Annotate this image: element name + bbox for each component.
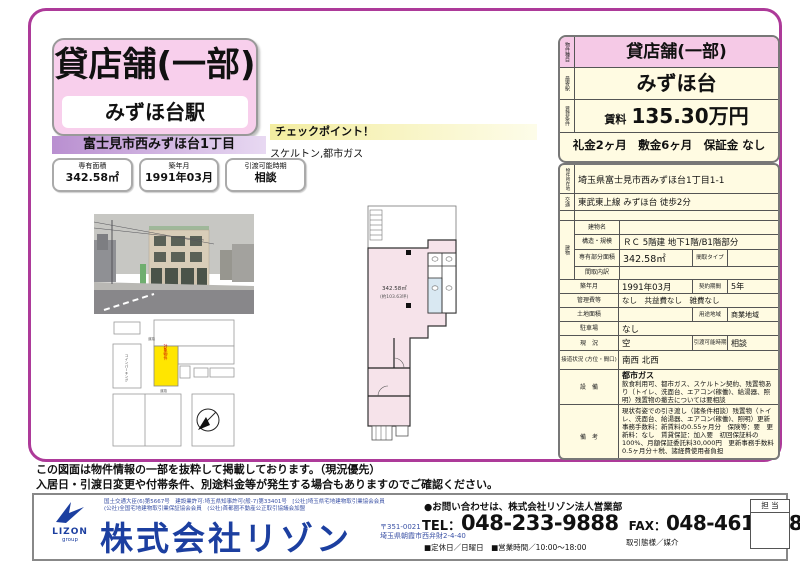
site-map: 対象物件 コインパーキング 道路 道路: [92, 318, 252, 450]
equipment-value: 都市ガス 飲食利用可、都市ガス、スケルトン契約、残置物あり（トイレ、洗面台、エア…: [619, 370, 778, 406]
land-value: [619, 308, 692, 321]
row-built: 築年月 1991年03月 契約期間 5年: [560, 280, 778, 294]
road-label-1: 道路: [148, 336, 155, 341]
handover-value: 相談: [728, 336, 778, 350]
flyer-page: 貸店舗(一部) みずほ台駅 富士見市西みずほ台1丁目 専有面積 342.58㎡ …: [0, 0, 800, 565]
access-value: 東武東上線 みずほ台 徒歩2分: [575, 194, 778, 210]
chip-built-value: 1991年03月: [141, 171, 218, 184]
subject-parcel-label: 対象物件: [164, 343, 169, 361]
logo-name: LIZON: [44, 528, 96, 537]
land-label: 土地面積: [560, 308, 619, 321]
summary-terms: 礼金2ヶ月 敷金6ヶ月 保証金 なし: [560, 133, 778, 158]
summary-row-type: 物件種目 貸店舗(一部): [560, 37, 778, 68]
building-name-value: [620, 221, 778, 234]
logo-sub: group: [44, 537, 96, 543]
parking-label: 駐車場: [560, 322, 619, 335]
footer: LIZON group 国土交通大臣(6)第5667号 建設業許可:埼玉県知事許…: [32, 493, 788, 561]
status-value: 空: [619, 336, 692, 350]
building-name-label: 建物名: [575, 221, 620, 234]
summary-row-rent: 賃貸条件 賃料 135.30万円: [560, 100, 778, 133]
staff-label: 担 当: [751, 500, 789, 513]
summary-station-value: みずほ台: [575, 68, 778, 99]
location-value: 埼玉県富士見市西みずほ台1丁目1-1: [575, 165, 778, 193]
restroom-area: [428, 278, 442, 313]
chip-area-label: 専有面積: [54, 162, 131, 171]
road-access-value: 南西 北西: [619, 351, 778, 369]
north-compass-icon: [197, 409, 219, 431]
row-layout-detail: 間取内訳: [575, 267, 778, 280]
detail-table: 物件所在地 埼玉県富士見市西みずほ台1丁目1-1 交通 東武東上線 みずほ台 徒…: [558, 163, 780, 460]
spec-chips: 専有面積 342.58㎡ 築年月 1991年03月 引渡可能時期 相談: [52, 158, 306, 192]
rent-prefix: 賃料: [604, 113, 626, 126]
contract-value: 5年: [728, 280, 778, 293]
floorplan-area-sub: (約103.63坪): [380, 293, 409, 300]
status-label: 現 況: [560, 336, 619, 350]
floorplan-area-label: 342.58㎡: [382, 284, 407, 292]
fees-value: なし 共益費なし 雑費なし: [619, 294, 778, 307]
license-line1: 国土交通大臣(6)第5667号 建設業許可:埼玉県知事許可(般-7)第33401…: [104, 499, 385, 506]
layout-type-value: [728, 250, 778, 266]
row-access: 交通 東武東上線 みずほ台 徒歩2分: [560, 194, 778, 211]
road-label-2: 道路: [160, 388, 167, 393]
parking-label: コインパーキング: [124, 354, 129, 383]
access-label: 交通: [560, 194, 575, 210]
row-fees: 管理費等 なし 共益費なし 雑費なし: [560, 294, 778, 308]
fax-label: FAX：: [629, 517, 666, 534]
station-name: みずほ台駅: [62, 96, 248, 128]
structure-label: 構造・規模: [575, 235, 620, 249]
contract-label: 契約期間: [692, 280, 728, 293]
contact-numbers: TEL： 048-233-9888 FAX： 048-461-3788: [422, 511, 800, 535]
summary-row-station: 最寄駅 みずほ台: [560, 68, 778, 100]
checkpoint-banner: チェックポイント！: [270, 124, 537, 140]
row-access-extra: [560, 211, 778, 221]
row-road: 接道状況 (方位・間口) 南西 北西: [560, 351, 778, 370]
layout-detail-label: 間取内訳: [575, 267, 620, 280]
chip-area-value: 342.58㎡: [54, 171, 131, 184]
location-label: 物件所在地: [560, 165, 575, 193]
checkpoint-text: スケルトン,都市ガス: [270, 145, 363, 160]
handover-label: 引渡可能時期: [692, 336, 728, 350]
tel-label: TEL：: [422, 515, 461, 534]
built-label: 築年月: [560, 280, 619, 293]
property-type-title: 貸店舗(一部): [54, 45, 256, 86]
company-logo: LIZON group: [44, 500, 96, 543]
chip-built-label: 築年月: [141, 162, 218, 171]
equipment-line2: 飲食利用可、都市ガス、スケルトン契約、残置物あり（トイレ、洗面台、エアコン(稼働…: [622, 380, 772, 404]
row-building-name: 建物名: [575, 221, 778, 235]
summary-rent-value: 賃料 135.30万円: [575, 100, 778, 132]
equipment-label: 設 備: [560, 370, 619, 404]
row-location: 物件所在地 埼玉県富士見市西みずほ台1丁目1-1: [560, 165, 778, 194]
summary-type-label: 物件種目: [560, 37, 575, 67]
row-structure: 構造・規模 ＲＣ 5階建 地下1階/B1階部分: [575, 235, 778, 250]
stairs: [370, 210, 382, 240]
chip-handover: 引渡可能時期 相談: [225, 158, 306, 192]
title-box: 貸店舗(一部) みずほ台駅: [52, 38, 258, 136]
chip-handover-label: 引渡可能時期: [227, 162, 304, 171]
fees-label: 管理費等: [560, 294, 619, 307]
floor-area-value: 342.58㎡: [620, 250, 692, 266]
built-value: 1991年03月: [619, 280, 692, 293]
summary-card: 物件種目 貸店舗(一部) 最寄駅 みずほ台 賃貸条件 賃料 135.30万円 礼…: [558, 35, 780, 163]
equipment-line1: 都市ガス: [622, 372, 775, 380]
remarks-value: 現状有姿での引き渡し（諸条件相談）残置物（トイレ、洗面台、給湯器、エアコン(稼働…: [619, 405, 778, 457]
row-parking: 駐車場 なし: [560, 322, 778, 336]
tel-number: 048-233-9888: [461, 511, 619, 535]
disclaimer-line1: この図面は物件情報の一部を抜粋して掲載しております。（現況優先）: [36, 462, 498, 477]
row-equipment: 設 備 都市ガス 飲食利用可、都市ガス、スケルトン契約、残置物あり（トイレ、洗面…: [560, 370, 778, 405]
summary-type-value: 貸店舗(一部): [575, 37, 778, 67]
lizon-bird-icon: [53, 500, 87, 524]
deal-type: 取引態様／媒介: [626, 537, 679, 548]
chip-built: 築年月 1991年03月: [139, 158, 220, 192]
structure-value: ＲＣ 5階建 地下1階/B1階部分: [620, 235, 778, 249]
chip-handover-value: 相談: [227, 171, 304, 184]
company-name: 株式会社リゾン: [100, 512, 352, 560]
disclaimer: この図面は物件情報の一部を抜粋して掲載しております。（現況優先） 入居日・引渡日…: [36, 462, 498, 492]
floor-plan: 342.58㎡ (約103.63坪): [358, 198, 470, 450]
floor-area-label: 専有部分面積: [575, 250, 620, 266]
row-remarks: 備 考 現状有姿での引き渡し（諸条件相談）残置物（トイレ、洗面台、給湯器、エアコ…: [560, 405, 778, 460]
summary-row-terms: 礼金2ヶ月 敷金6ヶ月 保証金 なし: [560, 133, 778, 158]
row-land: 土地面積 用途地域 商業地域: [560, 308, 778, 322]
layout-type-label: 間取タイプ: [692, 250, 728, 266]
row-building: 建物 建物名 構造・規模 ＲＣ 5階建 地下1階/B1階部分 専有部分面積 34…: [560, 221, 778, 280]
parking-value: なし: [619, 322, 778, 335]
building-photo: [94, 214, 254, 314]
remarks-label: 備 考: [560, 405, 619, 460]
address-band: 富士見市西みずほ台1丁目: [52, 136, 266, 154]
row-floor-area: 専有部分面積 342.58㎡ 間取タイプ: [575, 250, 778, 267]
disclaimer-line2: 入居日・引渡日変更や付帯条件、別途料金等が発生する場合もありますのでご確認くださ…: [36, 477, 498, 492]
zoning-value: 商業地域: [728, 308, 778, 321]
business-hours: ■定休日／日曜日 ■営業時間／10:00～18:00: [424, 542, 586, 553]
building-label: 建物: [560, 221, 575, 279]
summary-station-label: 最寄駅: [560, 68, 575, 99]
zoning-label: 用途地域: [692, 308, 728, 321]
layout-detail-value: [620, 267, 778, 280]
road-access-label: 接道状況 (方位・間口): [560, 351, 619, 369]
staff-box: 担 当: [750, 499, 790, 549]
rent-amount: 135.30万円: [631, 104, 748, 128]
chip-area: 専有面積 342.58㎡: [52, 158, 133, 192]
summary-rent-label: 賃貸条件: [560, 100, 575, 132]
license-text: 国土交通大臣(6)第5667号 建設業許可:埼玉県知事許可(般-7)第33401…: [104, 499, 385, 513]
row-status: 現 況 空 引渡可能時期 相談: [560, 336, 778, 351]
